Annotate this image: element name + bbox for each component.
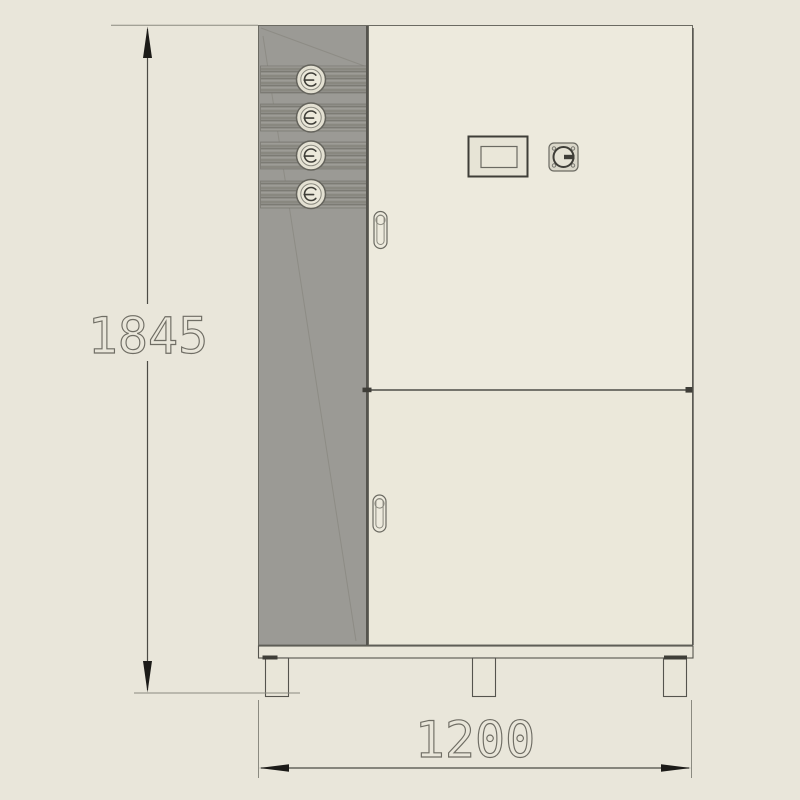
- upper-door: [369, 26, 693, 391]
- door-handle-lower: [373, 495, 386, 532]
- pipe-connector: [297, 103, 326, 132]
- dim-arrow-left-icon: [259, 764, 289, 772]
- pipe-connector: [297, 141, 326, 170]
- width-dimension-label: 1200: [415, 711, 535, 769]
- drawing-canvas: 1845 1200: [0, 0, 800, 800]
- display-screen: [481, 147, 517, 168]
- dim-arrow-down-icon: [143, 661, 152, 693]
- display-panel: [469, 137, 528, 177]
- pipe-connector: [297, 65, 326, 94]
- dim-arrow-right-icon: [661, 764, 691, 772]
- door-handle-upper: [374, 212, 387, 249]
- base-frame: [259, 646, 694, 658]
- foot-middle: [473, 658, 496, 697]
- foot-left: [266, 658, 289, 697]
- divider-right-cap: [686, 387, 694, 393]
- technical-drawing: 1845 1200: [0, 0, 800, 800]
- dimension-width: 1200: [259, 700, 692, 778]
- cabinet: [259, 26, 694, 697]
- height-dimension-label: 1845: [88, 307, 208, 365]
- socket-switch-bar: [564, 155, 575, 159]
- dim-arrow-up-icon: [143, 27, 152, 59]
- pipe-connector: [297, 180, 326, 209]
- base-corner-mark: [263, 656, 278, 660]
- foot-right: [664, 658, 687, 697]
- lower-door: [369, 390, 693, 645]
- power-socket: [549, 143, 578, 171]
- base-corner-mark: [664, 656, 687, 660]
- divider-left-cap: [363, 388, 372, 393]
